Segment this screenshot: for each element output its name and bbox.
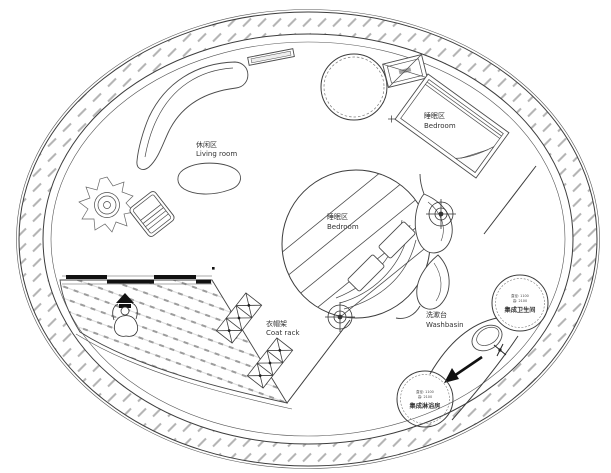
coat-rack-label-en: Coat rack — [266, 329, 300, 337]
living-room-label: 休闲区 Living room — [196, 140, 237, 158]
washbasin-label-en: Washbasin — [426, 321, 464, 329]
bedroom-upper-label-zh: 睡眠区 — [424, 112, 445, 120]
shower-pod-height: 高: 2100 — [418, 394, 432, 399]
wall-inner-line — [43, 34, 573, 444]
wall-shelf — [248, 49, 295, 66]
shower-pod: 直径: 1100 高: 2100 集成淋浴房 — [397, 371, 453, 427]
coffee-table — [178, 163, 241, 194]
potted-plant — [79, 177, 134, 232]
toilet-pod: 直径: 1100 高: 2100 集成卫生间 — [492, 275, 548, 331]
corner-cross-mark — [388, 116, 395, 123]
bedroom-center-label-zh: 睡眠区 — [327, 213, 348, 221]
outer-wall-ring — [17, 10, 600, 469]
toilet-pod-diameter: 直径: 1100 — [511, 293, 529, 298]
flow-arrow — [444, 357, 482, 383]
equipment-box — [383, 55, 428, 88]
bedroom-upper-label-en: Bedroom — [424, 122, 456, 130]
round-table — [321, 54, 387, 120]
partition-line-upper — [484, 166, 536, 234]
column-dot-marker — [212, 267, 215, 270]
shower-pod-name: 集成淋浴房 — [409, 402, 441, 410]
shower-pod-diameter: 直径: 1100 — [416, 389, 434, 394]
washbasin-label-zh: 洗漱台 — [426, 310, 447, 319]
coat-rack-label: 衣帽架 Coat rack — [266, 319, 300, 337]
washbasin-label: 洗漱台 Washbasin — [426, 310, 464, 329]
bedroom-center-label-en: Bedroom — [327, 223, 359, 231]
wall-ring-hatch — [19, 12, 597, 466]
floor-plan: 休闲区 Living room 睡眠区 Bedroom — [0, 0, 611, 473]
lounge-chair — [128, 190, 175, 238]
floor-plan-page: 休闲区 Living room 睡眠区 Bedroom — [0, 0, 611, 473]
coat-rack-label-zh: 衣帽架 — [266, 319, 287, 328]
toilet-pod-name: 集成卫生间 — [504, 306, 536, 314]
downlight-symbol-2 — [325, 302, 355, 332]
living-room-label-en: Living room — [196, 150, 237, 158]
toilet-pod-height: 高: 2100 — [513, 298, 527, 303]
pillow-2 — [347, 254, 384, 291]
living-room-label-zh: 休闲区 — [196, 140, 217, 149]
